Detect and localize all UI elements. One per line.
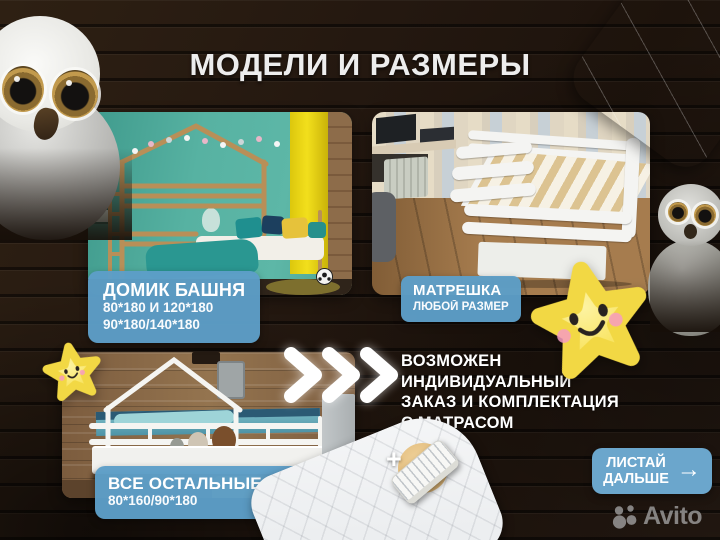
label-size-line: ЛЮБОЙ РАЗМЕР [413, 300, 509, 314]
size-label-matreshka: МАТРЕШКА ЛЮБОЙ РАЗМЕР [401, 276, 521, 322]
garland-light [166, 137, 172, 143]
owl-eye [694, 204, 716, 226]
owl-eye [52, 70, 98, 118]
note-line: ЗАКАЗ И КОМПЛЕКТАЦИЯ [401, 392, 619, 413]
garland-light [184, 135, 190, 141]
next-line-1: ЛИСТАЙ [603, 455, 669, 471]
label-title: МАТРЕШКА [413, 283, 509, 300]
eye-glint [66, 80, 72, 86]
pillow-teal-small [308, 222, 326, 238]
garland-light [148, 141, 154, 147]
swipe-next-button[interactable]: ЛИСТАЙ ДАЛЬШЕ → [592, 448, 712, 494]
owl-eye [668, 202, 688, 222]
monitor [376, 114, 416, 144]
garland-light [132, 148, 138, 154]
pillow-yellow [281, 217, 308, 239]
garland-light [256, 136, 262, 142]
avito-logo-icon [612, 503, 639, 530]
avito-brand-text: Avito [643, 502, 702, 531]
office-chair [372, 192, 396, 262]
next-line-2: ДАЛЬШЕ [603, 471, 669, 487]
shadow-fade [650, 240, 720, 332]
triple-chevron-right-icon [281, 344, 399, 406]
avito-watermark: Avito [612, 502, 702, 531]
star-plush-small-left [33, 334, 113, 411]
owl-plush-left [0, 10, 132, 240]
ad-canvas: МОДЕЛИ И РАЗМЕРЫ [0, 0, 720, 540]
label-title: ДОМИК БАШНЯ [103, 280, 245, 300]
owl-eye [2, 66, 44, 112]
star-plush-big [512, 243, 672, 400]
pillow-teal [235, 217, 263, 240]
plus-sign: + [386, 444, 402, 475]
owl-beak [684, 224, 697, 239]
label-size-line: 90*180/140*180 [103, 317, 245, 333]
owl-plush-right [650, 180, 720, 332]
label-size-line: 80*180 И 120*180 [103, 300, 245, 316]
arrow-right-icon: → [677, 456, 701, 484]
size-label-domik: ДОМИК БАШНЯ 80*180 И 120*180 90*180/140*… [88, 271, 260, 343]
garland-light [274, 141, 280, 147]
shadow-fade [0, 148, 132, 240]
garland-light [202, 138, 208, 144]
garland-light [238, 139, 244, 145]
next-button-label: ЛИСТАЙ ДАЛЬШЕ [603, 455, 669, 487]
garland-light [220, 142, 226, 148]
eye-glint [14, 76, 20, 82]
soccer-ball [316, 268, 333, 285]
